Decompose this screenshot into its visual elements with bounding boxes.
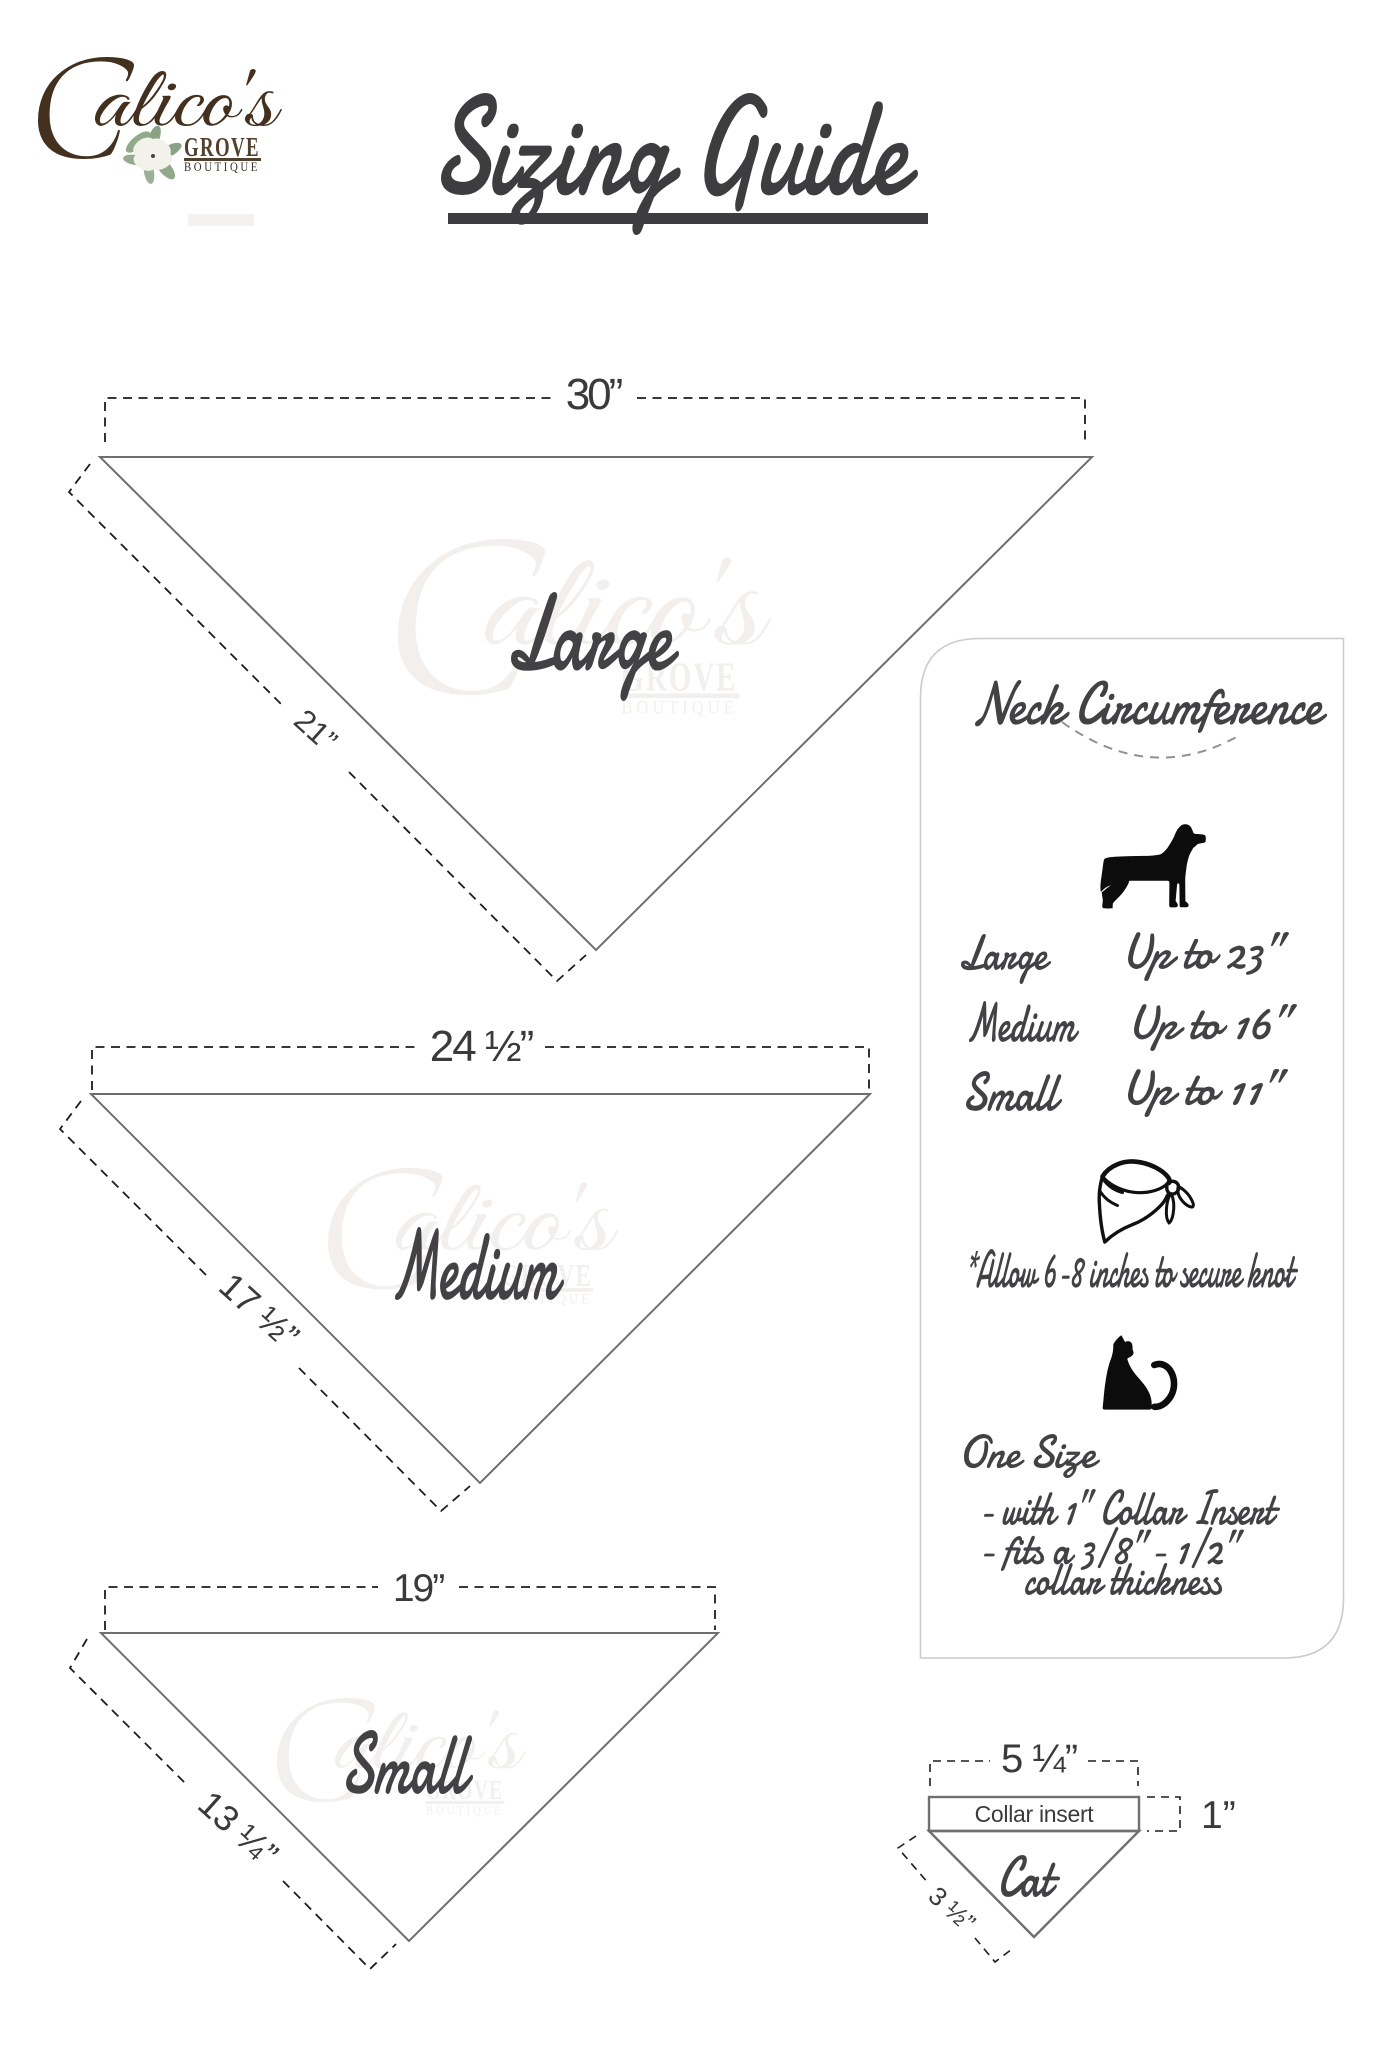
svg-text:5 ¼”: 5 ¼” (1001, 1737, 1077, 1781)
svg-text:Collar insert: Collar insert (975, 1801, 1095, 1827)
svg-text:24 ½”: 24 ½” (430, 1022, 534, 1071)
svg-text:GROVE: GROVE (184, 132, 260, 162)
svg-text:1”: 1” (1201, 1794, 1236, 1837)
svg-text:19”: 19” (393, 1567, 444, 1610)
svg-text:30”: 30” (566, 370, 623, 419)
svg-text:BOUTIQUE: BOUTIQUE (184, 160, 260, 174)
